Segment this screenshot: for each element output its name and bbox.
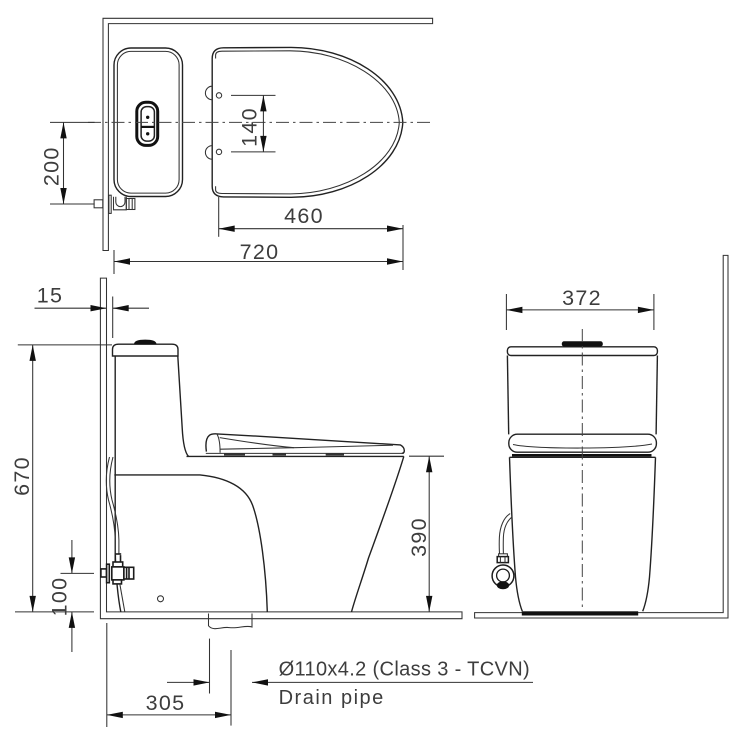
svg-text:140: 140 [237, 107, 261, 147]
svg-text:15: 15 [37, 283, 64, 307]
svg-text:Ø110x4.2 (Class 3 - TCVN): Ø110x4.2 (Class 3 - TCVN) [279, 659, 530, 681]
svg-text:390: 390 [407, 517, 431, 557]
svg-text:100: 100 [48, 577, 72, 617]
svg-text:460: 460 [284, 204, 324, 228]
svg-text:372: 372 [562, 286, 602, 310]
svg-text:305: 305 [146, 691, 186, 715]
svg-text:200: 200 [39, 146, 63, 186]
svg-text:670: 670 [10, 456, 34, 496]
svg-text:720: 720 [240, 240, 280, 264]
svg-text:Drain pipe: Drain pipe [279, 687, 385, 709]
